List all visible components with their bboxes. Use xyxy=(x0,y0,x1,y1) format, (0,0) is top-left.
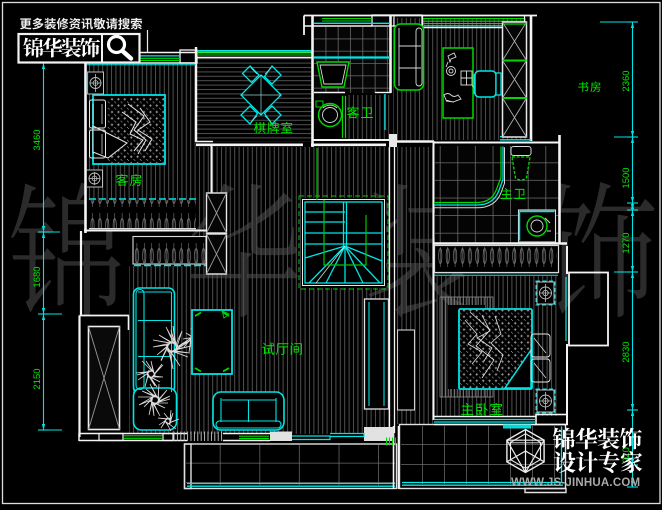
svg-text:1270: 1270 xyxy=(621,232,632,253)
svg-text:2150: 2150 xyxy=(32,368,43,389)
svg-text:1680: 1680 xyxy=(32,266,43,287)
svg-text:3460: 3460 xyxy=(32,129,43,150)
svg-text:WWW.JS-JINHUA.COM: WWW.JS-JINHUA.COM xyxy=(511,477,640,489)
svg-text:2360: 2360 xyxy=(621,70,632,91)
svg-text:2830: 2830 xyxy=(621,341,632,362)
svg-text:1500: 1500 xyxy=(621,167,632,188)
